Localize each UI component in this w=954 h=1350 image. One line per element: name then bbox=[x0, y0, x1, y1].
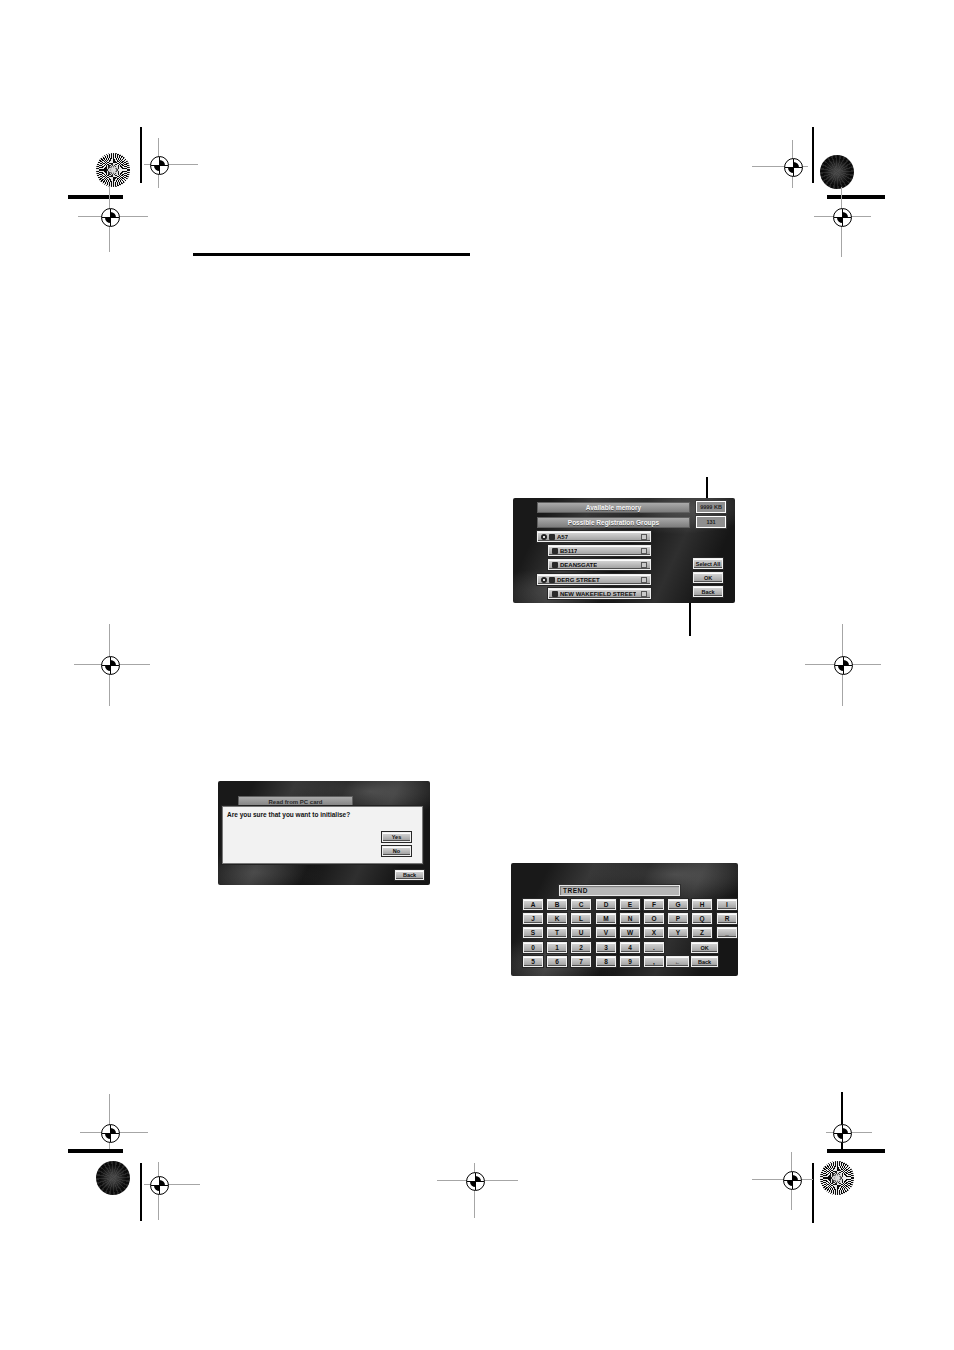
list-item[interactable]: B5117 bbox=[548, 545, 651, 556]
registration-groups-bar: Possible Registration Groups bbox=[537, 517, 690, 528]
crop-bar bbox=[827, 195, 885, 199]
list-item[interactable]: A57 bbox=[537, 531, 651, 542]
keyboard-key[interactable]: Q bbox=[692, 913, 712, 924]
color-patch-dark bbox=[96, 1161, 130, 1195]
color-patch-pinwheel bbox=[820, 1161, 854, 1195]
name-input[interactable]: TREND bbox=[559, 885, 680, 896]
backspace-key[interactable]: ← bbox=[666, 956, 689, 967]
list-item[interactable]: DERG STREET bbox=[537, 574, 651, 585]
registration-target bbox=[101, 1124, 120, 1143]
checkbox-icon[interactable] bbox=[641, 534, 647, 540]
checkbox-icon[interactable] bbox=[641, 548, 647, 554]
registration-target bbox=[783, 1171, 802, 1190]
dialog-message: Are you sure that you want to initialise… bbox=[227, 811, 350, 818]
back-button[interactable]: Back bbox=[395, 870, 424, 880]
list-item[interactable]: NEW WAKEFIELD STREET bbox=[548, 588, 651, 599]
registration-target bbox=[466, 1172, 485, 1191]
list-item-label: A57 bbox=[557, 534, 568, 540]
registration-target bbox=[101, 656, 120, 675]
registration-target bbox=[833, 1124, 852, 1143]
crop-bar bbox=[68, 195, 123, 199]
registration-target bbox=[150, 156, 169, 175]
keyboard-key[interactable]: 2 bbox=[571, 942, 591, 953]
screenshot-initialise-dialog: Read from PC card Are you sure that you … bbox=[218, 781, 430, 885]
screenshot-registration-groups: Available memory 9999 KB Possible Regist… bbox=[513, 498, 735, 603]
keyboard-key[interactable]: S bbox=[523, 927, 543, 938]
checkbox-icon[interactable] bbox=[641, 591, 647, 597]
keyboard-key[interactable]: 4 bbox=[620, 942, 640, 953]
crop-line bbox=[812, 1163, 814, 1223]
keyboard-key[interactable]: K bbox=[547, 913, 567, 924]
list-item-label: B5117 bbox=[560, 548, 577, 554]
list-item-label: DERG STREET bbox=[557, 577, 600, 583]
keyboard-key[interactable]: _ bbox=[717, 927, 737, 938]
keyboard-key[interactable]: 5 bbox=[523, 956, 543, 967]
keyboard-key[interactable]: 8 bbox=[596, 956, 616, 967]
keyboard-key[interactable]: J bbox=[523, 913, 543, 924]
keyboard-key[interactable]: A bbox=[523, 899, 543, 910]
keyboard-key[interactable]: Y bbox=[668, 927, 688, 938]
pictograph-icon bbox=[549, 577, 555, 583]
select-all-button[interactable]: Select All bbox=[693, 558, 723, 569]
keyboard-key[interactable]: C bbox=[571, 899, 591, 910]
keyboard-key[interactable]: D bbox=[596, 899, 616, 910]
pictograph-icon bbox=[552, 548, 558, 554]
keyboard-key[interactable]: H bbox=[692, 899, 712, 910]
available-memory-value: 9999 KB bbox=[696, 501, 726, 513]
keyboard-key[interactable]: E bbox=[620, 899, 640, 910]
keyboard-key[interactable]: . bbox=[644, 942, 664, 953]
crop-bar bbox=[68, 1149, 123, 1153]
registration-target bbox=[101, 208, 120, 227]
keyboard-key[interactable]: U bbox=[571, 927, 591, 938]
available-memory-bar: Available memory bbox=[537, 502, 690, 513]
registration-target bbox=[834, 656, 853, 675]
keyboard-key[interactable]: 7 bbox=[571, 956, 591, 967]
back-button[interactable]: Back bbox=[693, 586, 723, 597]
keyboard-key[interactable]: Z bbox=[692, 927, 712, 938]
crop-bar bbox=[827, 1149, 885, 1153]
yes-button[interactable]: Yes bbox=[382, 832, 411, 842]
pictograph-icon bbox=[549, 534, 555, 540]
checkbox-icon[interactable] bbox=[641, 562, 647, 568]
ok-button[interactable]: OK bbox=[693, 572, 723, 583]
back-button[interactable]: Back bbox=[691, 956, 718, 967]
list-item-label: NEW WAKEFIELD STREET bbox=[560, 591, 636, 597]
pictograph-icon bbox=[552, 562, 558, 568]
keyboard-key[interactable]: V bbox=[596, 927, 616, 938]
alarm-clock-icon bbox=[541, 577, 547, 583]
keyboard-key[interactable]: T bbox=[547, 927, 567, 938]
keyboard-key[interactable]: R bbox=[717, 913, 737, 924]
registration-target bbox=[150, 1176, 169, 1195]
crop-line bbox=[140, 127, 142, 183]
pictograph-icon bbox=[552, 591, 558, 597]
crop-line bbox=[812, 127, 814, 183]
ok-button[interactable]: OK bbox=[691, 942, 718, 953]
color-patch-pinwheel bbox=[96, 153, 130, 187]
alarm-clock-icon bbox=[541, 534, 547, 540]
keyboard-key[interactable]: F bbox=[644, 899, 664, 910]
registration-target bbox=[784, 158, 803, 177]
color-patch-dark bbox=[820, 155, 854, 189]
keyboard-key[interactable]: 1 bbox=[547, 942, 567, 953]
registration-groups-value: 131 bbox=[696, 516, 726, 528]
available-memory-label: Available memory bbox=[586, 504, 641, 511]
keyboard-key[interactable]: M bbox=[596, 913, 616, 924]
keyboard-key[interactable]: W bbox=[620, 927, 640, 938]
keyboard-key[interactable]: N bbox=[620, 913, 640, 924]
keyboard-key[interactable]: I bbox=[717, 899, 737, 910]
dialog-title: Read from PC card bbox=[268, 799, 322, 805]
section-rule bbox=[193, 253, 470, 256]
callout-line-groups bbox=[689, 602, 691, 636]
screenshot-keyboard: TREND A B C D E F G H I J K L M N O P Q … bbox=[511, 863, 738, 976]
list-item-label: DEANSGATE bbox=[560, 562, 597, 568]
list-item[interactable]: DEANSGATE bbox=[548, 559, 651, 570]
keyboard-key[interactable]: 0 bbox=[523, 942, 543, 953]
registration-target bbox=[833, 208, 852, 227]
checkbox-icon[interactable] bbox=[641, 577, 647, 583]
crop-line bbox=[140, 1163, 142, 1221]
no-button[interactable]: No bbox=[382, 846, 411, 856]
keyboard-key[interactable]: B bbox=[547, 899, 567, 910]
keyboard-key[interactable]: O bbox=[644, 913, 664, 924]
name-input-value: TREND bbox=[563, 887, 588, 894]
keyboard-key[interactable]: , bbox=[644, 956, 664, 967]
keyboard-key[interactable]: L bbox=[571, 913, 591, 924]
keyboard-key[interactable]: G bbox=[668, 899, 688, 910]
keyboard-key[interactable]: P bbox=[668, 913, 688, 924]
keyboard-key[interactable]: X bbox=[644, 927, 664, 938]
manual-page: Available memory 9999 KB Possible Regist… bbox=[0, 0, 954, 1350]
registration-groups-label: Possible Registration Groups bbox=[568, 519, 659, 526]
keyboard-key[interactable]: 3 bbox=[596, 942, 616, 953]
keyboard-key[interactable]: 9 bbox=[620, 956, 640, 967]
keyboard-key[interactable]: 6 bbox=[547, 956, 567, 967]
